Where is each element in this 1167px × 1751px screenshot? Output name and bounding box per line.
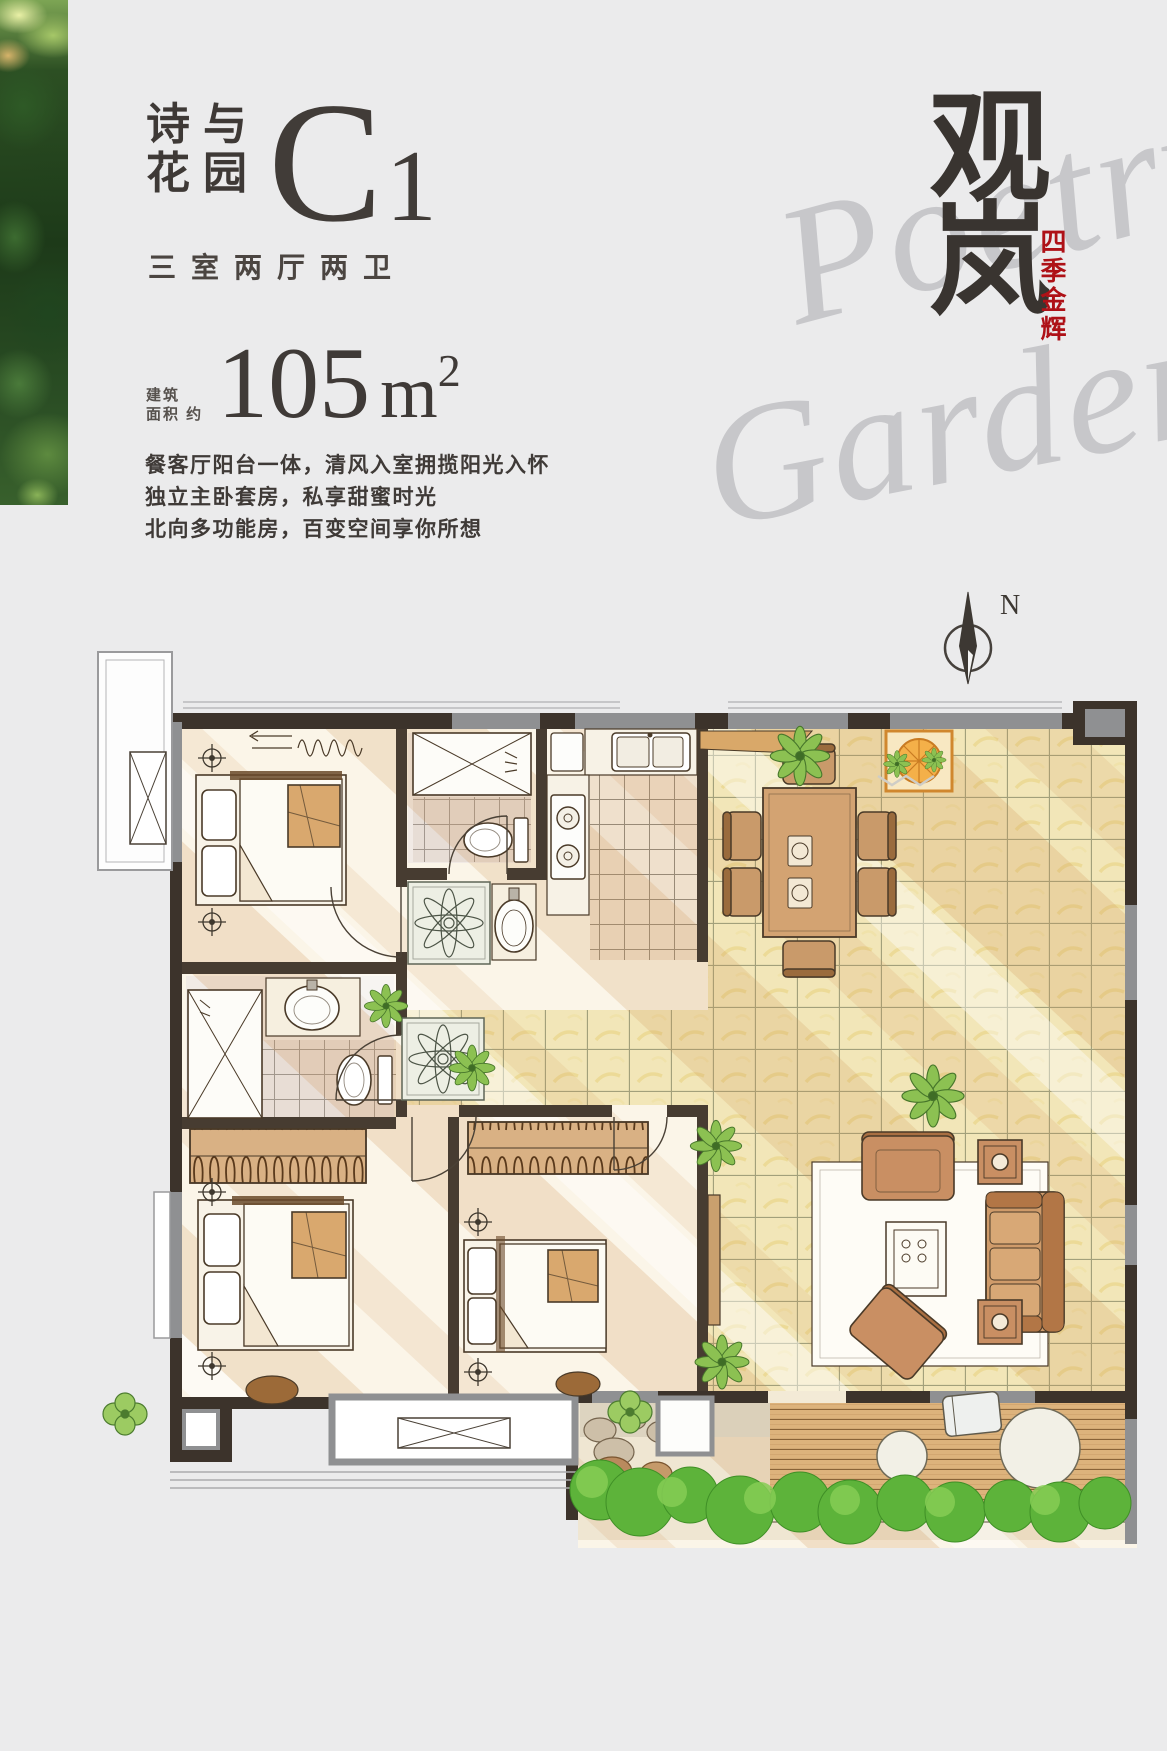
floor-plan-illustration <box>95 618 1155 1573</box>
room-spec: 三室两厅两卫 <box>148 246 406 286</box>
balcony-window <box>170 1397 575 1462</box>
unit-number: 1 <box>386 136 437 238</box>
poster-page: Poetry Garden 诗与 花园 C 1 三室两厅两卫 建筑 面积 约 1… <box>0 0 1167 1751</box>
area-label: 建筑 面积 约 <box>146 386 203 430</box>
garden-door-frame <box>658 1398 712 1454</box>
page-title: 诗与 花园 <box>146 100 260 198</box>
garden-terrace <box>570 1391 1131 1544</box>
unit-code: C 1 <box>268 77 437 249</box>
bay-window <box>98 652 172 870</box>
dining-table <box>763 788 856 937</box>
compass-icon: N <box>925 572 1040 707</box>
area-exponent: 2 <box>438 344 461 397</box>
area-block: 建筑 面积 约 105 m 2 <box>146 338 461 430</box>
foliage-artwork <box>0 0 68 505</box>
compass-north-label: N <box>1000 590 1020 621</box>
selling-point-3: 北向多功能房，百变空间享你所想 <box>145 519 550 540</box>
armchair <box>862 1132 954 1200</box>
selling-points: 餐客厅阳台一体，清风入室拥揽阳光入怀 独立主卧套房，私享甜蜜时光 北向多功能房，… <box>145 455 550 551</box>
garden-seat <box>942 1391 1002 1437</box>
hall-vanity <box>408 882 536 964</box>
logo-char-1: 观 <box>924 92 1056 205</box>
title-line-2: 花园 <box>146 149 260 198</box>
side-table-1 <box>978 1140 1022 1184</box>
selling-point-2: 独立主卧套房，私享甜蜜时光 <box>145 487 550 508</box>
area-unit: m <box>380 360 438 427</box>
area-label-line1: 建筑 <box>146 386 203 405</box>
area-value: 105 <box>217 338 370 430</box>
unit-letter: C <box>268 77 383 249</box>
area-label-line2: 面积 约 <box>146 405 203 424</box>
title-line-1: 诗与 <box>146 100 260 149</box>
side-table-2 <box>978 1300 1022 1344</box>
outdoor-plant <box>103 1393 147 1435</box>
coffee-table <box>886 1222 946 1296</box>
selling-point-1: 餐客厅阳台一体，清风入室拥揽阳光入怀 <box>145 455 550 476</box>
tv-cabinet <box>708 1195 720 1325</box>
brand-seal: 四季金辉 <box>1034 228 1071 344</box>
